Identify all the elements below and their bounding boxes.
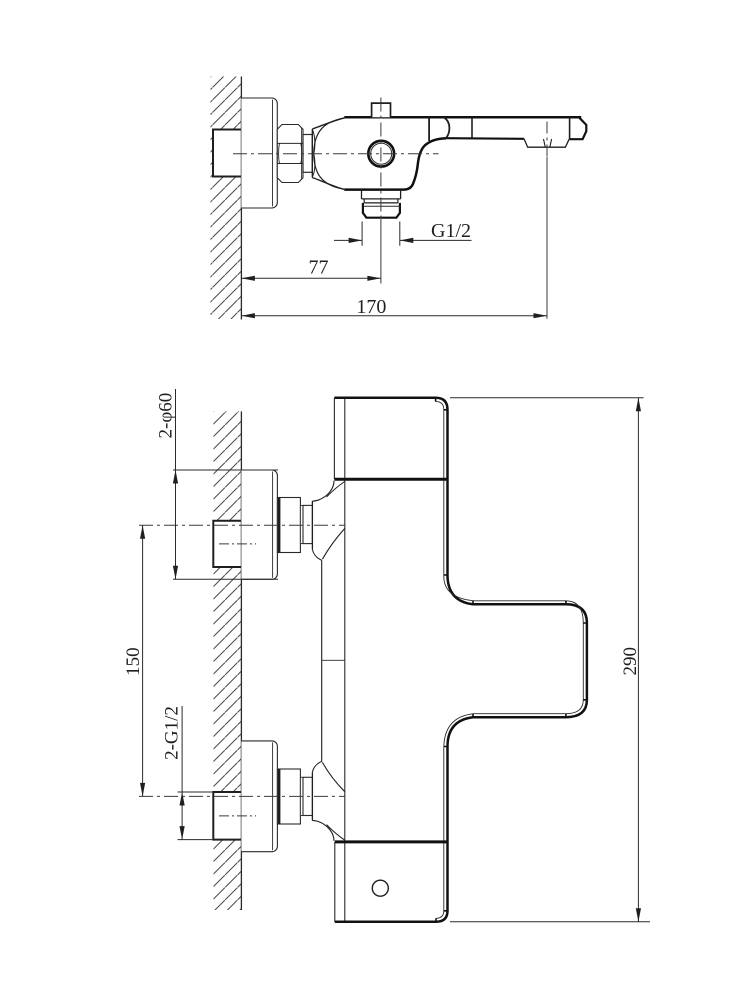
svg-text:170: 170 bbox=[356, 296, 386, 318]
svg-text:2-φ60: 2-φ60 bbox=[155, 393, 176, 439]
svg-text:G1/2: G1/2 bbox=[431, 220, 471, 242]
svg-text:150: 150 bbox=[123, 647, 144, 676]
svg-text:290: 290 bbox=[620, 647, 641, 676]
svg-text:77: 77 bbox=[309, 257, 329, 279]
svg-text:2-G1/2: 2-G1/2 bbox=[161, 706, 182, 760]
